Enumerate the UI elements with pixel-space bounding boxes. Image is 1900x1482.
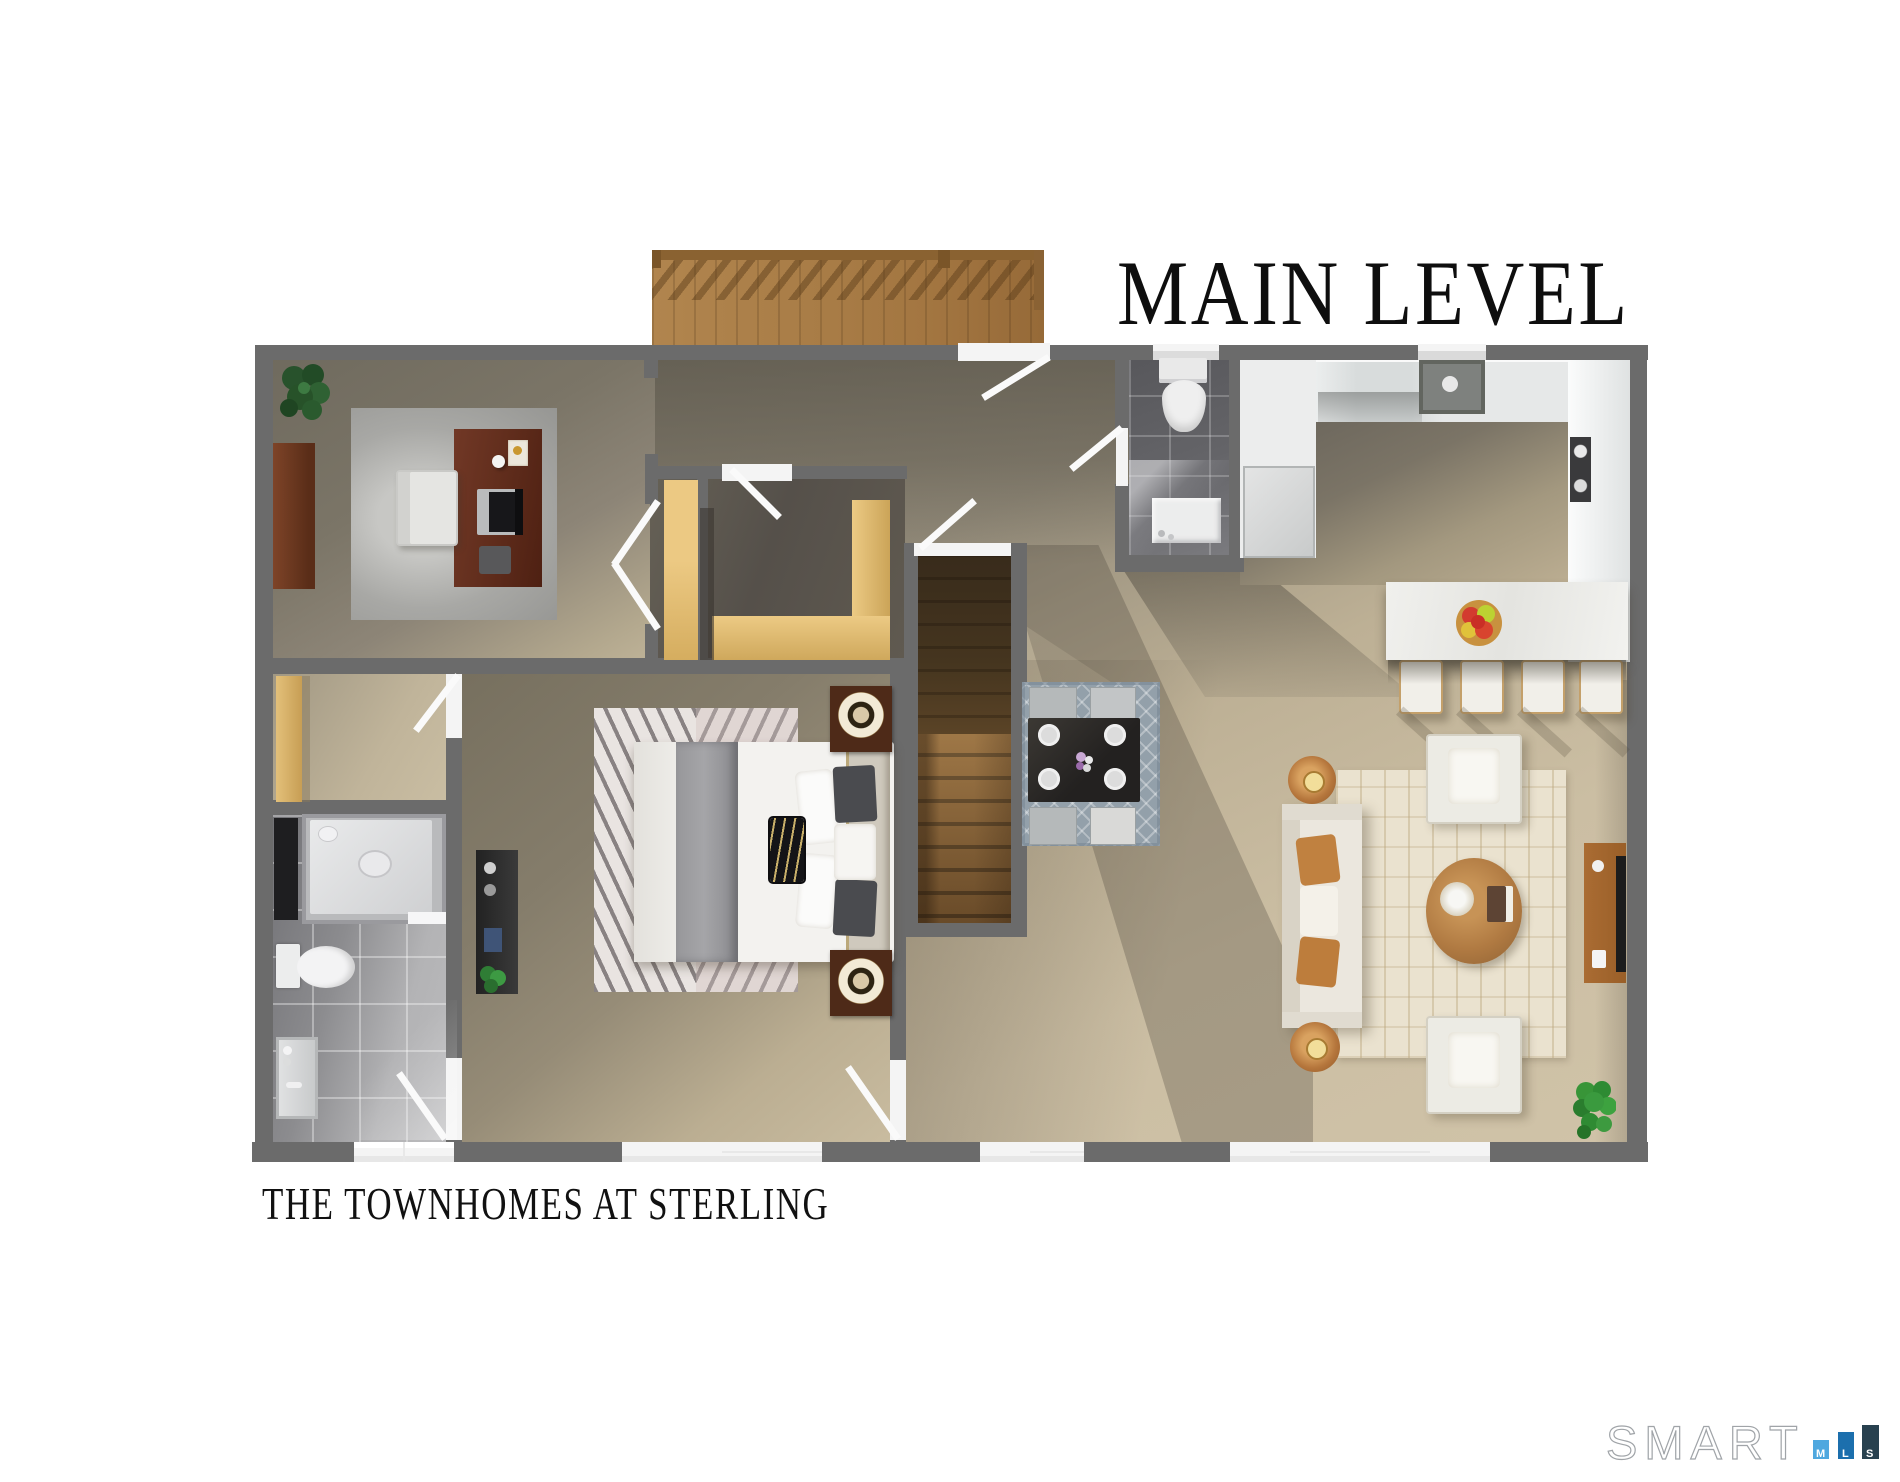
svg-text:SMART: SMART: [1606, 1416, 1805, 1469]
svg-text:S: S: [1866, 1448, 1873, 1460]
svg-text:L: L: [1842, 1448, 1849, 1460]
svg-text:M: M: [1816, 1448, 1825, 1460]
